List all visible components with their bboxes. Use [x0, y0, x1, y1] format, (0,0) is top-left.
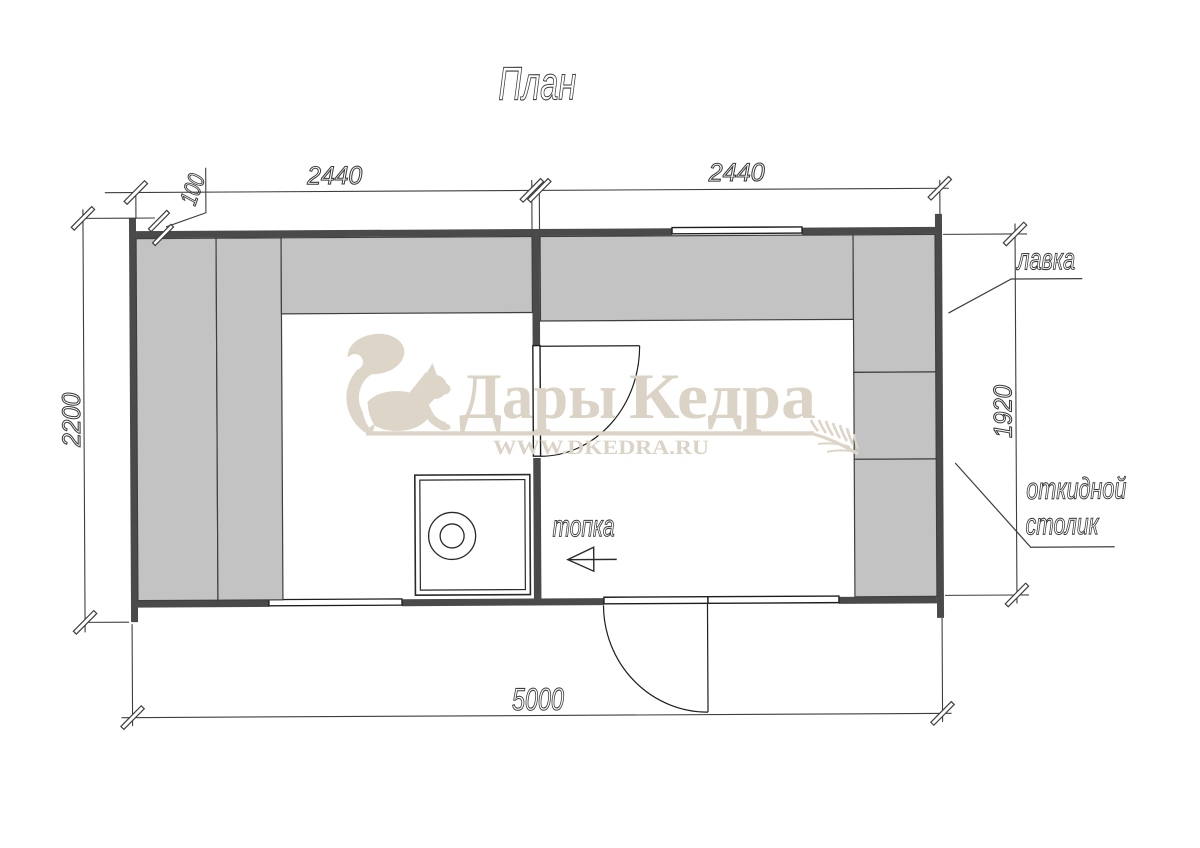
svg-text:2440: 2440	[306, 162, 362, 190]
svg-text:5000: 5000	[512, 681, 565, 717]
svg-text:топка: топка	[552, 510, 614, 543]
svg-text:Дары: Дары	[459, 361, 617, 433]
svg-text:WWW.DKEDRA.RU: WWW.DKEDRA.RU	[493, 437, 709, 459]
svg-text:откидной: откидной	[1026, 472, 1126, 506]
svg-text:Кедра: Кедра	[629, 361, 816, 433]
svg-text:лавка: лавка	[1016, 243, 1076, 276]
svg-text:План: План	[498, 56, 576, 109]
svg-text:1920: 1920	[989, 385, 1017, 438]
svg-text:2440: 2440	[708, 159, 765, 187]
svg-text:2200: 2200	[58, 393, 86, 448]
svg-text:столик: столик	[1025, 508, 1099, 541]
